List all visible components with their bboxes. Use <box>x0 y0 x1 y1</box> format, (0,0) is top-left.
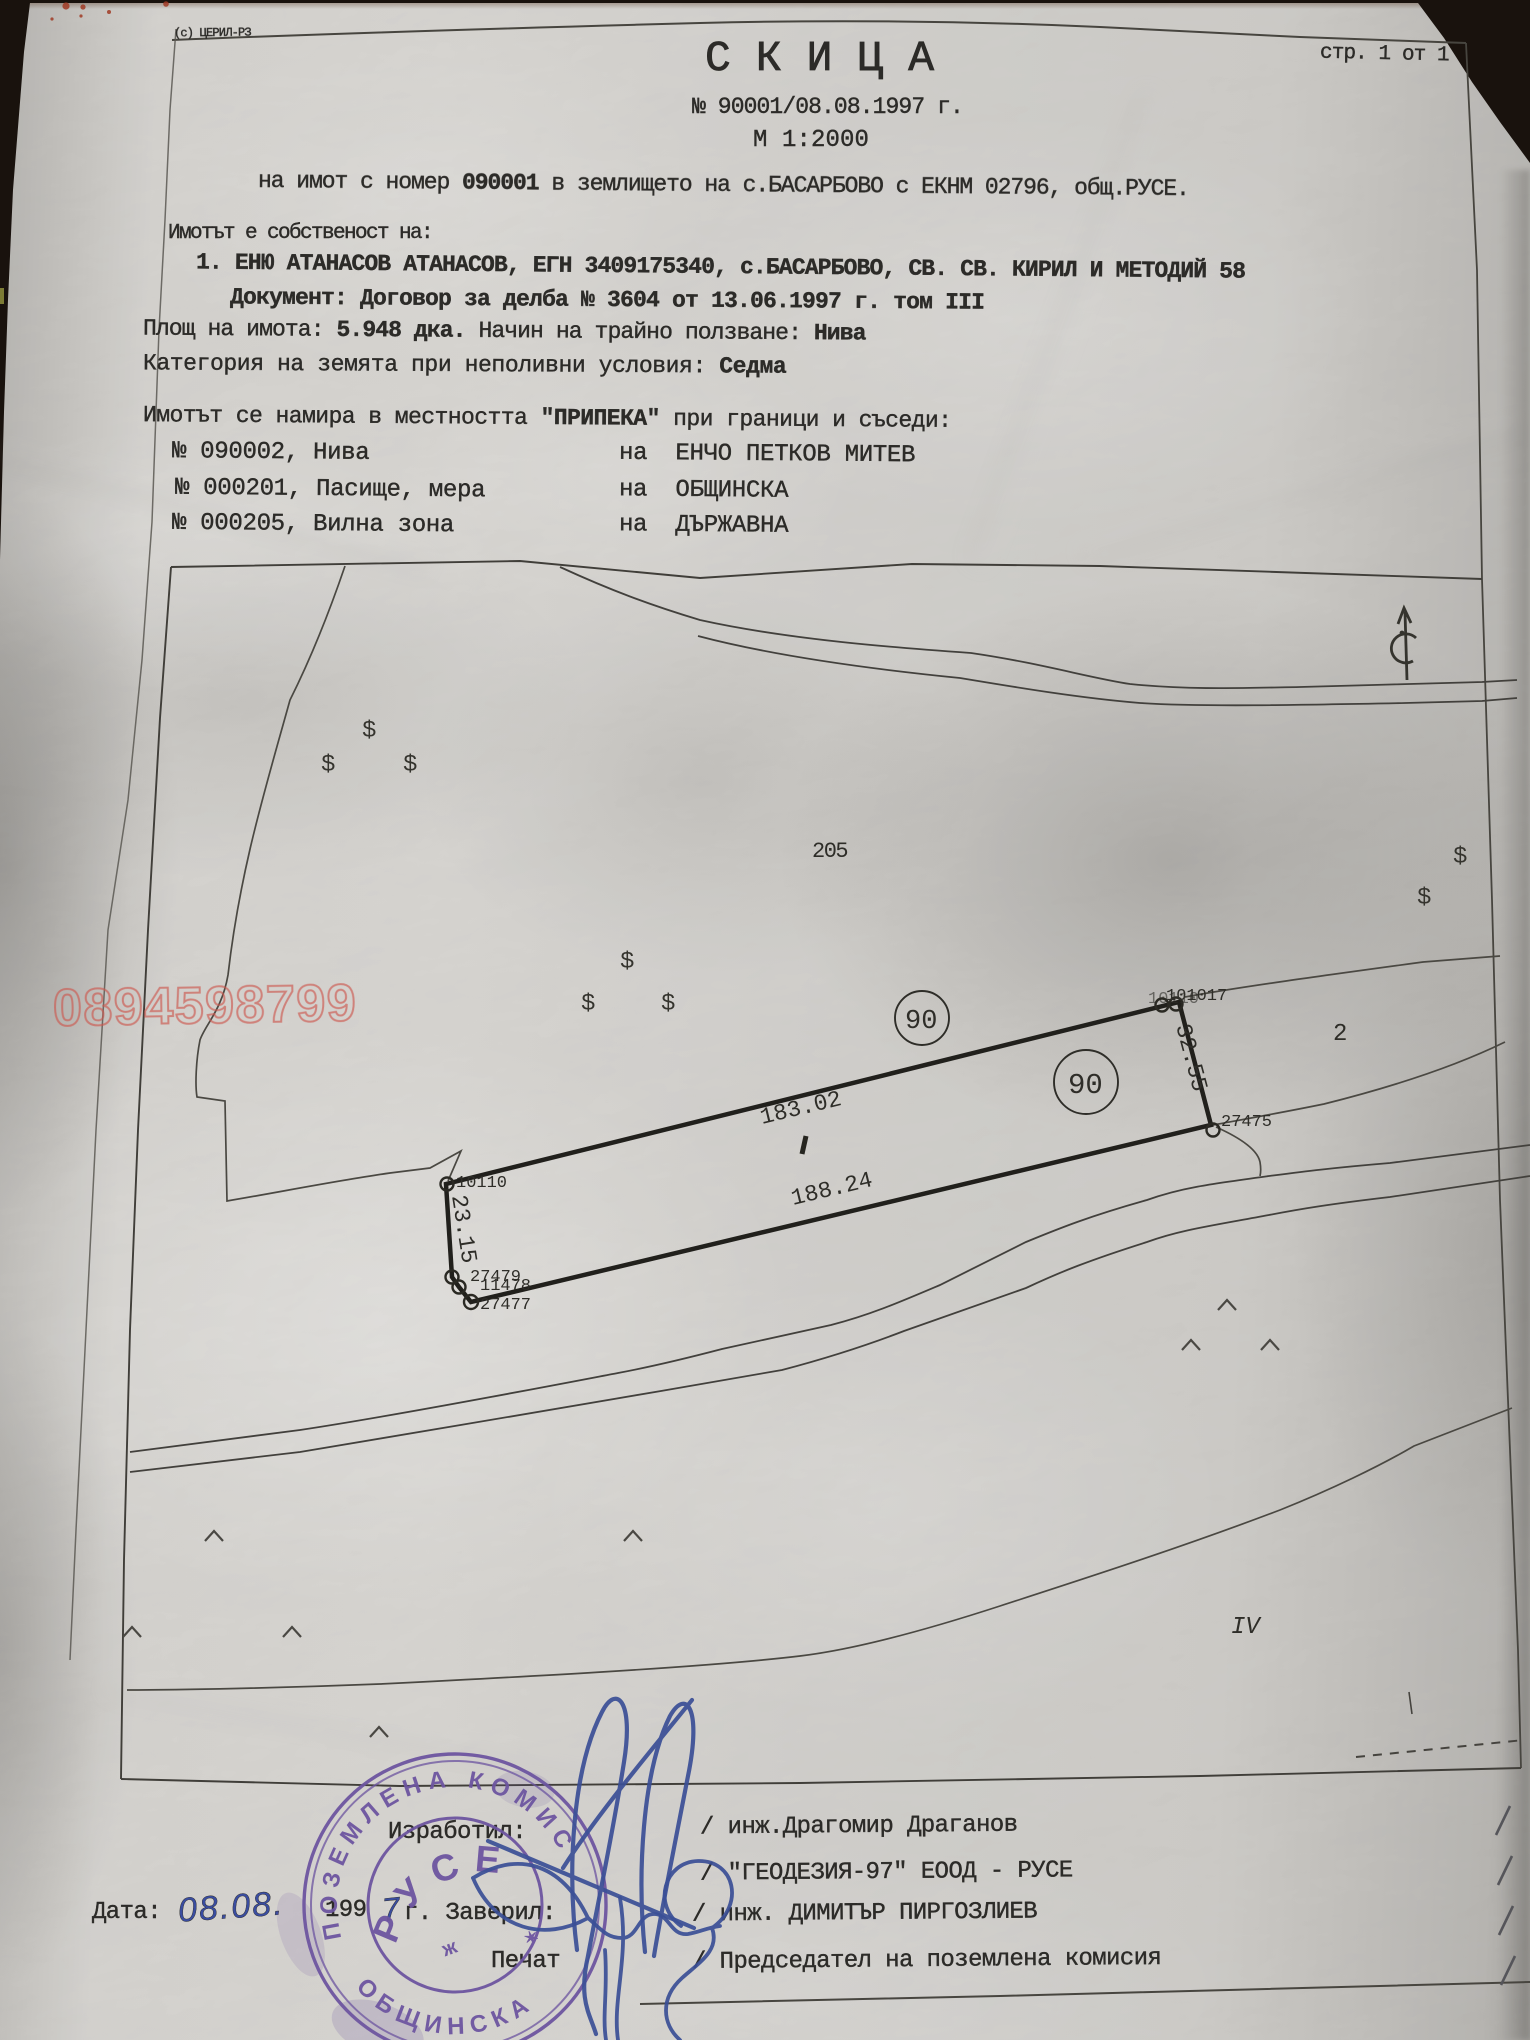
svg-text:ПОЗЕМЛЕНА КОМИС: ПОЗЕМЛЕНА КОМИС <box>277 1727 584 1947</box>
svg-text:ж: ж <box>438 1935 461 1961</box>
